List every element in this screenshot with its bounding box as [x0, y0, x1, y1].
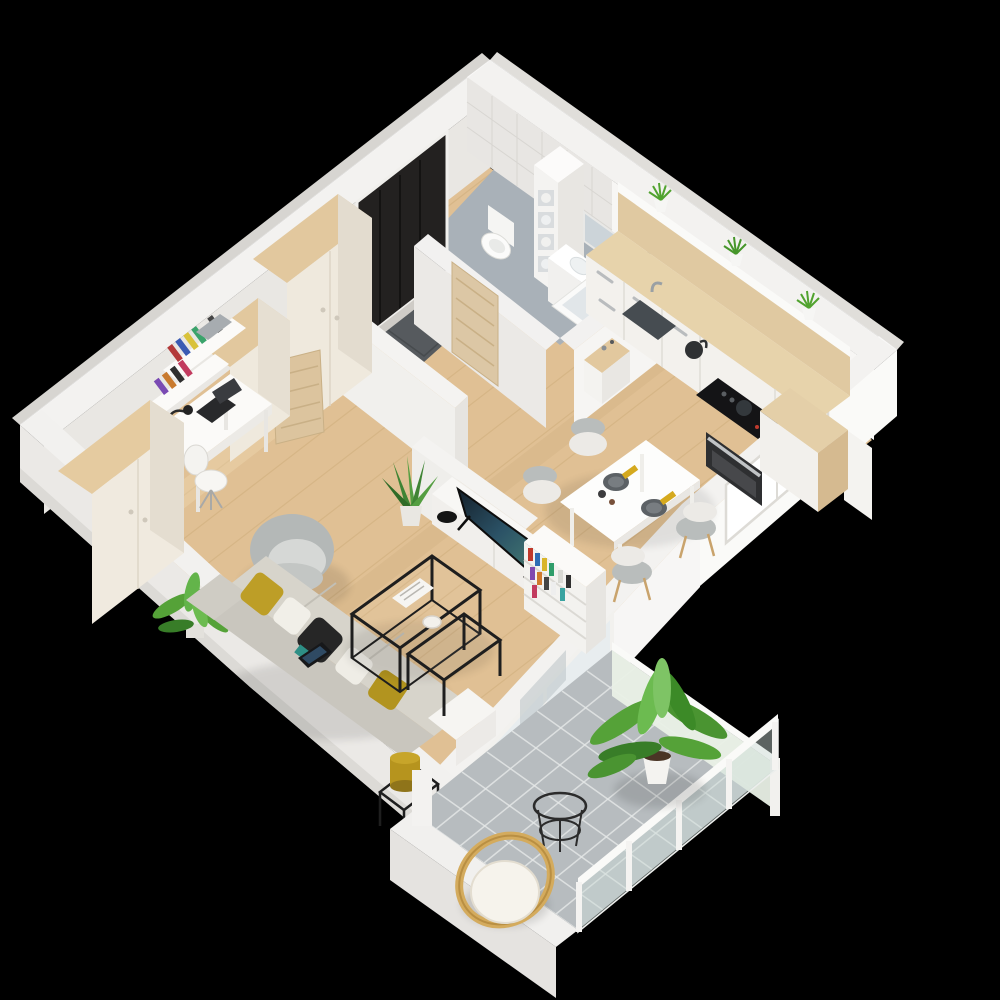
black-bowl [437, 511, 457, 523]
chair2-seat [523, 480, 561, 504]
desk-lamp-head [183, 405, 193, 415]
dining-chair-2 [523, 466, 561, 504]
kettle [685, 341, 703, 359]
white-bowl [423, 616, 441, 628]
desk-chair-seat [195, 470, 227, 492]
chair4-back [683, 502, 717, 522]
apartment-svg [0, 0, 1000, 1000]
chair1-seat [569, 432, 607, 456]
cooktop-knob-2 [730, 398, 735, 403]
wardrobe2-side [150, 400, 184, 553]
dining-chair-1 [569, 418, 607, 456]
wardrobe1-handle-2 [335, 316, 340, 321]
chair-cushion [471, 861, 539, 923]
plate-1-inner [608, 477, 624, 488]
cup-1 [598, 490, 606, 498]
chair3-back [611, 546, 645, 566]
wardrobe1-side [338, 194, 372, 373]
wardrobe2-handle-1 [129, 510, 134, 515]
cup-2 [609, 499, 615, 505]
cooktop-indicator [755, 425, 759, 429]
perfume-bottle-2 [610, 340, 614, 344]
cooktop-knob-1 [722, 392, 727, 397]
cooktop-pan [736, 400, 752, 416]
plate-2-inner [646, 503, 662, 514]
lamp-top [390, 752, 420, 764]
wardrobe2-handle-2 [143, 518, 148, 523]
perfume-bottle-1 [602, 346, 607, 351]
aloe-pot [400, 506, 422, 526]
wardrobe1-handle-1 [321, 308, 326, 313]
balcony-wall-connector [412, 770, 432, 826]
floor-plan-render [0, 0, 1000, 1000]
